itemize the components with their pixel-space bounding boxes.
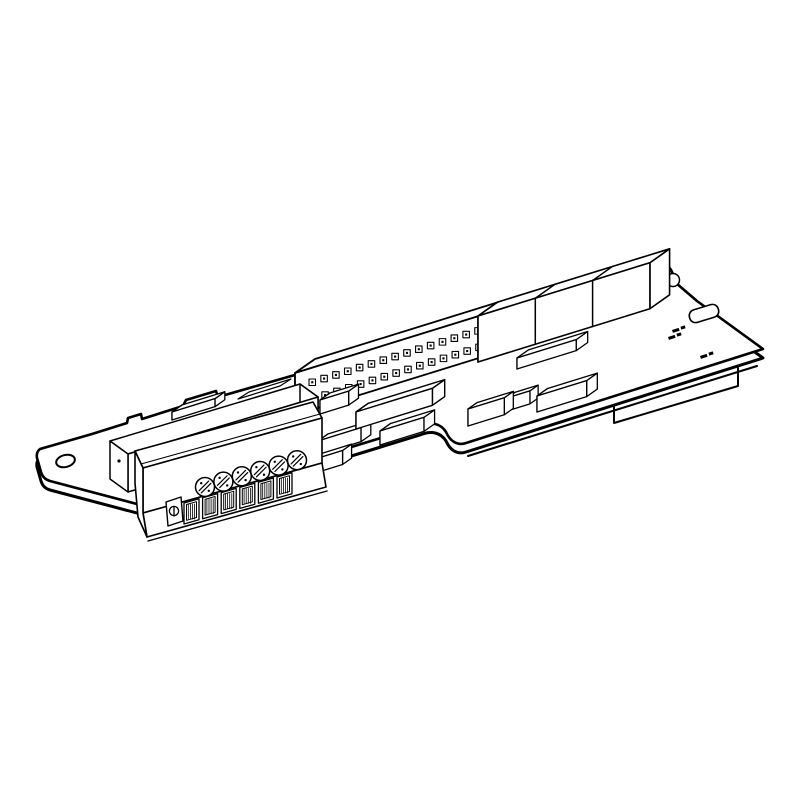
screw-dot [226, 484, 228, 486]
screw-terminal [196, 478, 215, 497]
screw-dot [237, 471, 239, 473]
screw-terminal [232, 467, 251, 486]
screw-dot [208, 490, 210, 492]
wire-opening [221, 488, 236, 513]
illustration-canvas [0, 0, 800, 800]
wire-opening [258, 478, 273, 503]
plug-latch [166, 497, 183, 526]
screw-terminal [251, 461, 270, 480]
header-hole-pin [453, 337, 455, 339]
header-hole-pin [382, 359, 384, 361]
header-hole-pin [441, 341, 443, 343]
header-hole-pin [418, 348, 420, 350]
screw-dot [281, 468, 283, 470]
header-hole-pin [431, 361, 433, 363]
header-hole-pin [359, 367, 361, 369]
screw-dot [255, 466, 257, 468]
header-hole-pin [430, 345, 432, 347]
socket-pin-dot [117, 459, 120, 462]
wire-opening [203, 494, 218, 519]
header-hole-pin [371, 379, 373, 381]
header-hole-pin [311, 381, 313, 383]
header-hole-pin [323, 378, 325, 380]
header-hole-pin [360, 383, 362, 385]
header-hole-pin [335, 374, 337, 376]
header-hole-pin [347, 370, 349, 372]
header-hole-pin [419, 365, 421, 367]
header-hole-pin [465, 333, 467, 335]
header-hole-pin [454, 354, 456, 356]
header-hole-pin [442, 357, 444, 359]
header-hole-pin [466, 350, 468, 352]
screw-dot [218, 477, 220, 479]
screw-dot [292, 455, 294, 457]
header-hole-pin [407, 368, 409, 370]
screw-dot [263, 474, 265, 476]
wire-opening [184, 499, 199, 524]
screw-terminal [269, 456, 288, 475]
header-hole-pin [394, 356, 396, 358]
screw-terminal [214, 472, 233, 491]
pcb-line-drawing [0, 0, 800, 800]
wire-opening [277, 473, 292, 498]
screw-terminal [288, 451, 307, 470]
header-hole-pin [383, 376, 385, 378]
screw-dot [300, 463, 302, 465]
header-hole-pin [370, 363, 372, 365]
header-hole-pin [395, 372, 397, 374]
screw-dot [200, 482, 202, 484]
header-hole-pin [406, 352, 408, 354]
screw-dot [244, 479, 246, 481]
screw-dot [274, 461, 276, 463]
wire-opening [240, 483, 255, 508]
